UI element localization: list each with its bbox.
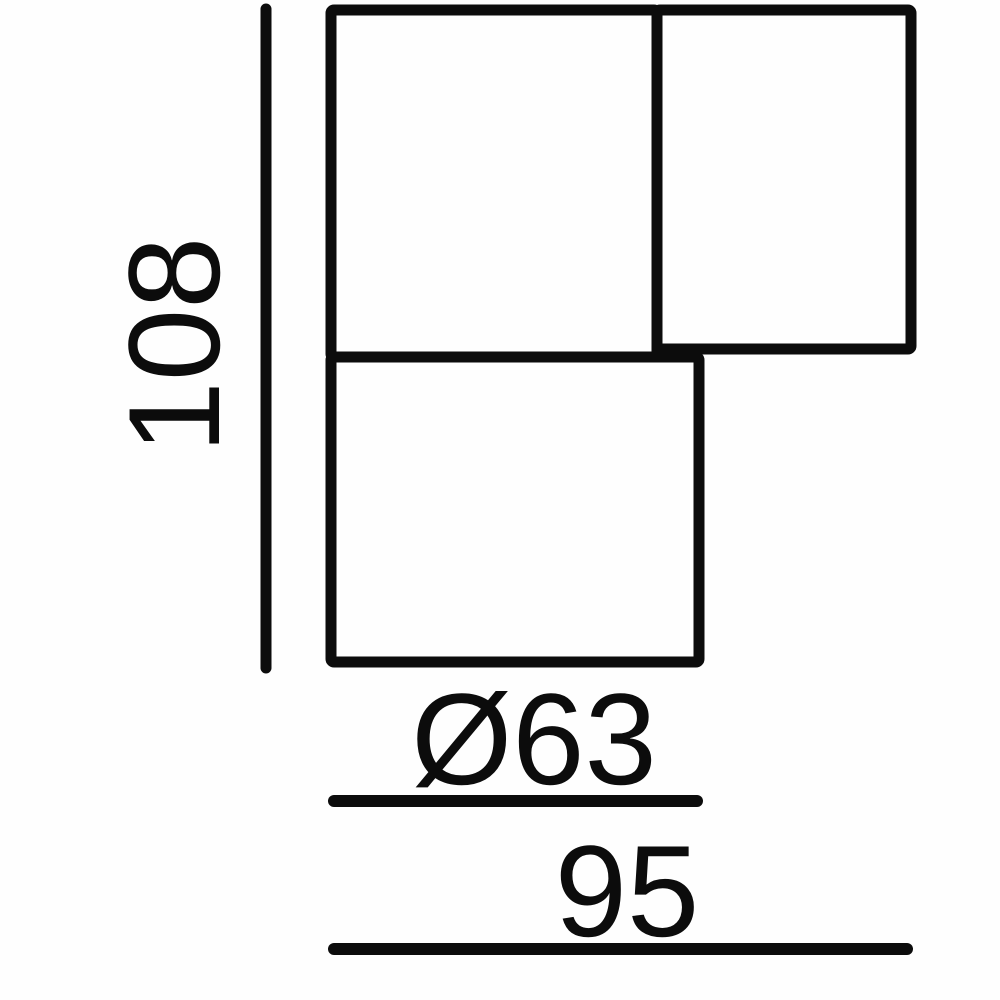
fixture-upper-right-outline <box>657 10 911 349</box>
height-dimension-label: 108 <box>109 237 239 454</box>
width-dimension-label: 95 <box>555 826 700 956</box>
fixture-lower-outline <box>331 357 699 662</box>
drawing-lines <box>0 0 1000 1000</box>
fixture-upper-left-outline <box>331 10 657 357</box>
diameter-dimension-label: Ø63 <box>411 674 657 804</box>
dimension-drawing: 108 Ø63 95 <box>0 0 1000 1000</box>
